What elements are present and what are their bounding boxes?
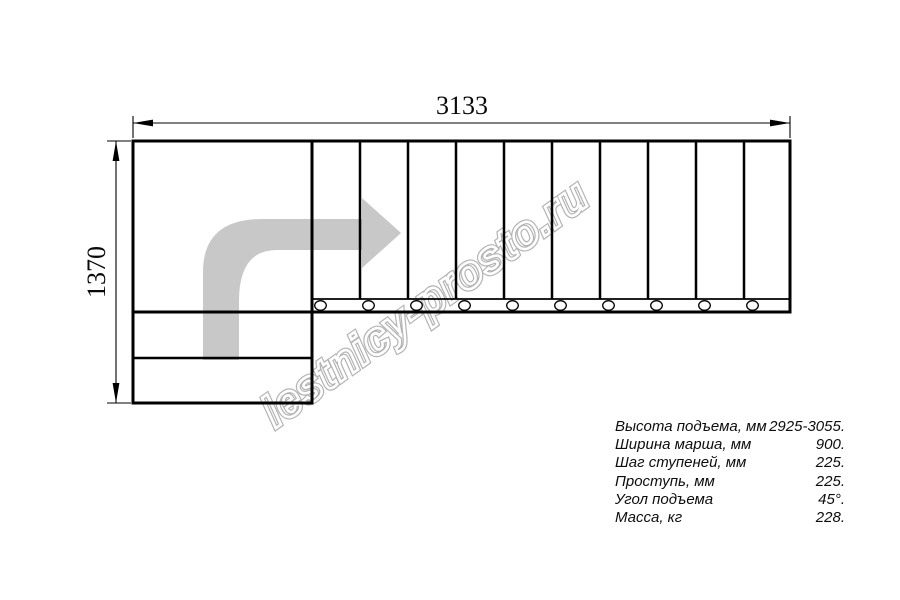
dimension-arrow-right xyxy=(770,120,790,127)
spec-label: Угол подъема xyxy=(615,491,713,509)
spec-row-tread: Проступь, мм 225. xyxy=(615,473,845,491)
height-dimension-label: 1370 xyxy=(82,246,111,298)
spec-value: 45°. xyxy=(818,491,845,509)
baluster-circle xyxy=(507,301,519,311)
baluster-circle xyxy=(699,301,711,311)
width-dimension-label: 3133 xyxy=(436,91,488,120)
baluster-circle xyxy=(459,301,471,311)
specs-table: Высота подъема, мм 2925-3055. Ширина мар… xyxy=(615,418,845,527)
spec-row-weight: Масса, кг 228. xyxy=(615,509,845,527)
spec-label: Высота подъема, мм xyxy=(615,418,767,436)
spec-label: Ширина марша, мм xyxy=(615,436,751,454)
dimension-height: 1370 xyxy=(82,141,131,403)
spec-row-rise-angle: Угол подъема 45°. xyxy=(615,491,845,509)
baluster-circle xyxy=(603,301,615,311)
spec-value: 225. xyxy=(816,454,845,472)
spec-row-step-pitch: Шаг ступеней, мм 225. xyxy=(615,454,845,472)
dimension-arrow-bottom xyxy=(113,383,120,403)
spec-value: 225. xyxy=(816,473,845,491)
tread-lines xyxy=(360,143,744,300)
baluster-circle xyxy=(315,301,327,311)
baluster-circles xyxy=(315,301,759,311)
spec-row-flight-width: Ширина марша, мм 900. xyxy=(615,436,845,454)
baluster-circle xyxy=(363,301,375,311)
spec-row-rise-height: Высота подъема, мм 2925-3055. xyxy=(615,418,845,436)
spec-label: Шаг ступеней, мм xyxy=(615,454,746,472)
baluster-circle xyxy=(411,301,423,311)
baluster-circle xyxy=(747,301,759,311)
spec-label: Проступь, мм xyxy=(615,473,715,491)
spec-value: 2925-3055. xyxy=(769,418,845,436)
dimension-arrow-left xyxy=(133,120,153,127)
dimension-width: 3133 xyxy=(133,91,790,138)
dimension-arrow-top xyxy=(113,141,120,161)
stair-plan-page: lestnicy-prosto.ru lestnicy-prosto.ru xyxy=(0,0,900,600)
spec-value: 900. xyxy=(816,436,845,454)
direction-arrow-icon xyxy=(203,198,401,360)
spec-value: 228. xyxy=(816,509,845,527)
spec-label: Масса, кг xyxy=(615,509,682,527)
baluster-circle xyxy=(651,301,663,311)
baluster-circle xyxy=(555,301,567,311)
